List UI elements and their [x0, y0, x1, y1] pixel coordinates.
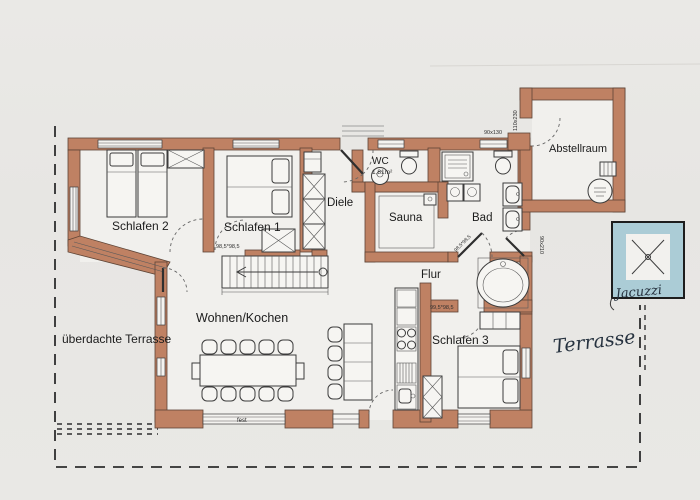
room-label-schlafen2: Schlafen 2 — [112, 219, 169, 233]
wardrobe-icon — [423, 376, 442, 418]
chair-icon — [221, 387, 236, 401]
window — [157, 297, 165, 325]
shower-icon — [442, 152, 473, 181]
handwritten-terrasse: Terrasse — [552, 326, 637, 358]
room-label-wohnen-kochen: Wohnen/Kochen — [196, 311, 288, 325]
room-label-abstellraum: Abstellraum — [549, 143, 607, 155]
dim-top-window: 90x130 — [484, 130, 502, 136]
dim-bedroom1-door: 98,5*98,5 — [216, 244, 240, 250]
dining-table — [192, 340, 304, 401]
room-label-flur: Flur — [421, 269, 441, 281]
wardrobe-icon — [303, 174, 325, 199]
chair-icon — [221, 340, 236, 354]
window — [233, 140, 279, 148]
sink-icon — [503, 208, 522, 231]
room-label-diele: Diele — [327, 197, 353, 209]
window — [157, 358, 165, 376]
wardrobe-icon — [168, 150, 204, 168]
dresser-icon — [480, 312, 520, 329]
double-bed-icon — [227, 156, 292, 217]
chair-icon — [278, 340, 293, 354]
window — [458, 414, 490, 424]
chair-icon — [202, 387, 217, 401]
window — [522, 348, 530, 378]
room-label-wc: WC — [372, 156, 389, 167]
dim-terrace-door: 90x210 — [538, 236, 544, 254]
chair-icon — [240, 340, 255, 354]
kitchen-counter — [395, 288, 418, 410]
room-label-sauna: Sauna — [389, 212, 423, 224]
dim-bedroom3-door: 99,5*98,5 — [430, 305, 454, 311]
chair-icon — [202, 340, 217, 354]
bed-icon — [138, 150, 167, 217]
dim-fixed-window: fest — [237, 418, 247, 424]
stool-icon — [328, 365, 342, 380]
sink-icon — [503, 183, 522, 206]
window — [70, 187, 78, 231]
wardrobe-icon — [303, 224, 325, 249]
chair-icon — [278, 387, 293, 401]
pen-stroke — [610, 298, 614, 310]
window — [378, 140, 404, 148]
radiator-icon — [600, 162, 616, 176]
toilet-icon — [400, 151, 418, 174]
scanned-floorplan: Schlafen 2 Schlafen 1 Diele WC 1,81m² Sa… — [0, 0, 700, 500]
floor-plan-svg: Schlafen 2 Schlafen 1 Diele WC 1,81m² Sa… — [0, 0, 700, 500]
window — [98, 140, 162, 148]
wc-area-label: 1,81m² — [372, 169, 393, 176]
handwritten-jacuzzi: Jacuzzi — [612, 283, 663, 302]
scan-artifact — [430, 64, 700, 66]
boiler-icon — [588, 179, 612, 203]
label-ueberdachte-terrasse: überdachte Terrasse — [62, 332, 172, 346]
room-label-schlafen3: Schlafen 3 — [432, 333, 489, 347]
chair-icon — [259, 387, 274, 401]
room-label-schlafen1: Schlafen 1 — [224, 220, 281, 234]
wardrobe-icon — [303, 199, 325, 224]
window — [480, 140, 507, 148]
toilet-icon — [494, 151, 512, 174]
chair-icon — [240, 387, 255, 401]
stool-icon — [328, 327, 342, 342]
washer-dryer-icon — [447, 184, 480, 201]
bathtub-icon — [477, 258, 529, 308]
stool-icon — [328, 384, 342, 399]
chair-icon — [259, 340, 274, 354]
double-bed-icon — [458, 346, 520, 408]
room-label-bad: Bad — [472, 212, 492, 224]
window — [333, 414, 359, 424]
stool-icon — [328, 346, 342, 361]
dim-storage-door: 110x230 — [513, 110, 519, 131]
bed-icon — [107, 150, 136, 217]
